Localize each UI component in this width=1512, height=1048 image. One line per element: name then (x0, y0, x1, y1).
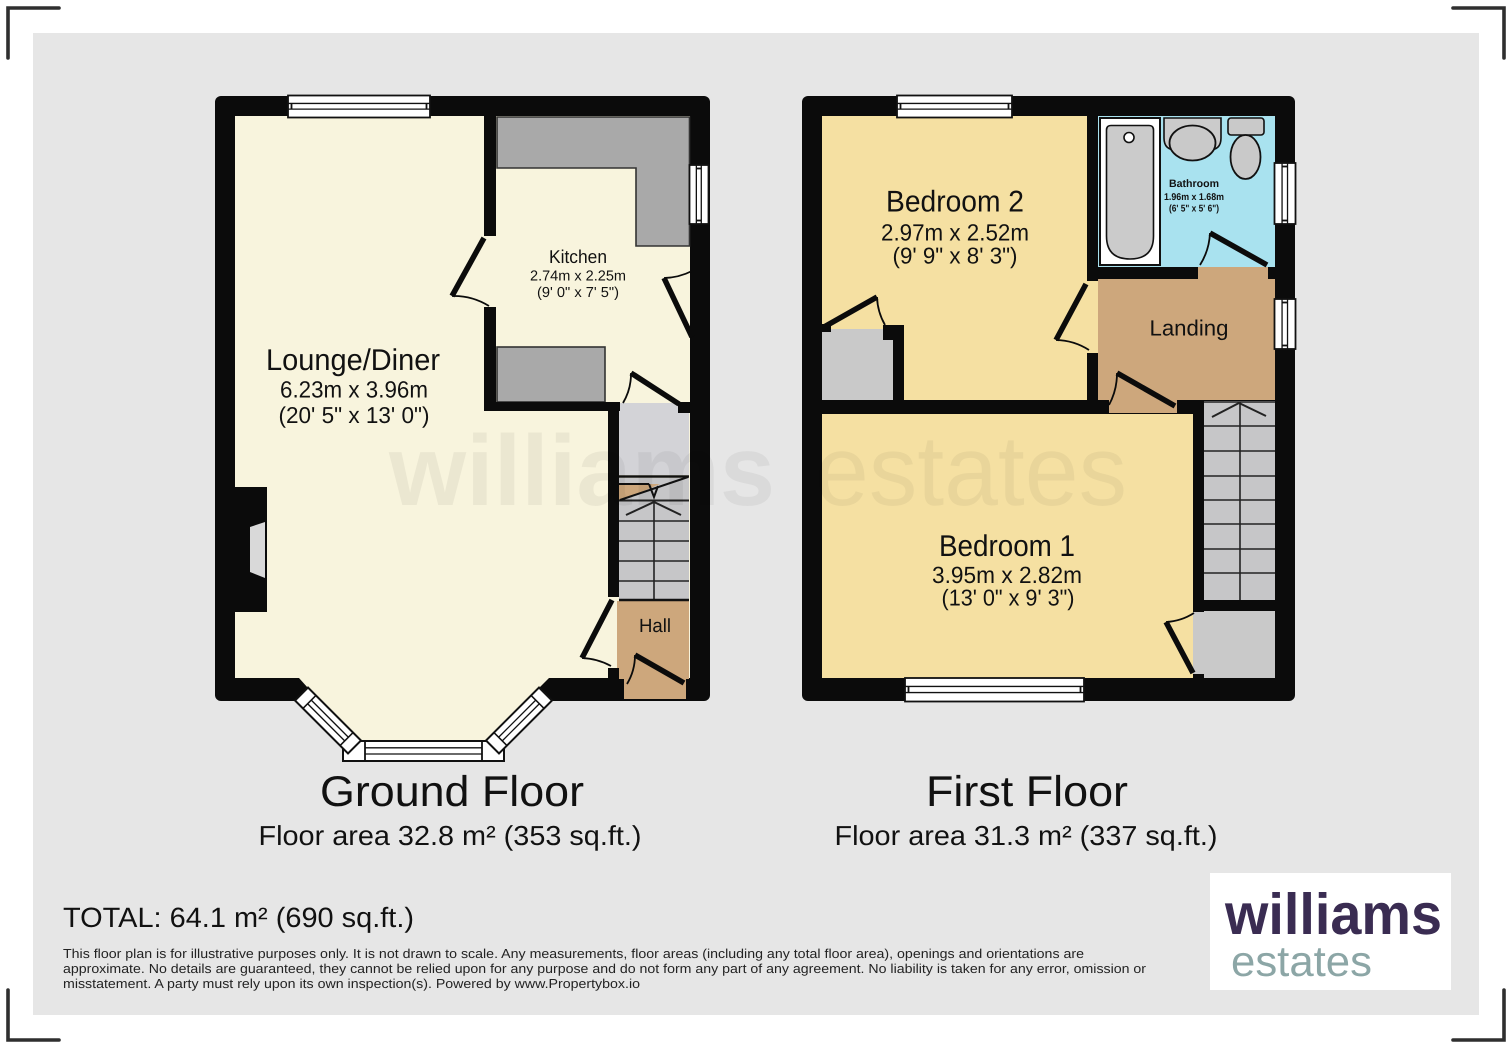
svg-text:Ground Floor: Ground Floor (320, 768, 584, 816)
svg-text:estates: estates (1231, 938, 1372, 986)
svg-text:2.74m x 2.25m: 2.74m x 2.25m (530, 269, 626, 285)
svg-text:(9' 0" x 7' 5"): (9' 0" x 7' 5") (537, 285, 619, 301)
svg-text:(20' 5" x 13' 0"): (20' 5" x 13' 0") (279, 402, 430, 428)
svg-text:Bathroom: Bathroom (1169, 178, 1219, 190)
svg-text:williams: williams (388, 415, 775, 527)
svg-text:1.96m x 1.68m: 1.96m x 1.68m (1164, 192, 1224, 203)
svg-text:This floor plan is for illustr: This floor plan is for illustrative purp… (63, 946, 1084, 961)
svg-text:misstatement. A party must rel: misstatement. A party must rely upon its… (63, 976, 640, 991)
svg-text:Lounge/Diner: Lounge/Diner (266, 344, 440, 377)
svg-text:Hall: Hall (639, 616, 671, 637)
svg-text:TOTAL: 64.1 m² (690 sq.ft.): TOTAL: 64.1 m² (690 sq.ft.) (63, 902, 414, 933)
svg-text:First Floor: First Floor (926, 768, 1128, 816)
svg-text:estates: estates (815, 415, 1127, 527)
svg-text:6.23m x 3.96m: 6.23m x 3.96m (280, 377, 428, 403)
svg-text:(6' 5" x 5' 6"): (6' 5" x 5' 6") (1169, 204, 1219, 215)
svg-text:Bedroom 2: Bedroom 2 (886, 186, 1024, 219)
svg-text:(9' 9" x 8' 3"): (9' 9" x 8' 3") (893, 243, 1018, 269)
svg-text:Landing: Landing (1150, 316, 1229, 341)
svg-text:Floor area 31.3 m² (337 sq.ft.: Floor area 31.3 m² (337 sq.ft.) (835, 820, 1218, 851)
svg-text:(13' 0" x 9' 3"): (13' 0" x 9' 3") (942, 585, 1075, 611)
svg-text:approximate. No details are gu: approximate. No details are guaranteed, … (63, 961, 1147, 976)
svg-text:Kitchen: Kitchen (549, 246, 607, 267)
svg-text:Bedroom 1: Bedroom 1 (939, 530, 1075, 563)
svg-text:Floor area 32.8 m² (353 sq.ft.: Floor area 32.8 m² (353 sq.ft.) (259, 820, 642, 851)
